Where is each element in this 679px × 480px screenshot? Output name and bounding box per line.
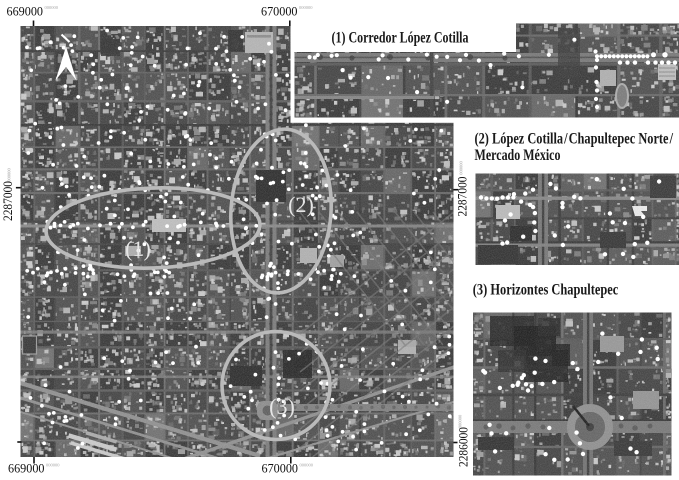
- svg-text:000000: 000000: [45, 5, 59, 10]
- svg-text:(3): (3): [269, 394, 295, 419]
- svg-text:(2) López Cotilla / Chapultepe: (2) López Cotilla / Chapultepec Norte /: [475, 130, 674, 147]
- svg-text:2287000: 2287000: [456, 177, 470, 217]
- svg-text:Mercado México: Mercado México: [475, 147, 561, 164]
- svg-text:(2): (2): [288, 192, 314, 217]
- svg-text:670000: 670000: [262, 462, 299, 476]
- svg-text:669000: 669000: [7, 5, 44, 19]
- svg-text:000000: 000000: [300, 463, 314, 468]
- svg-text:(1): (1): [125, 236, 151, 261]
- svg-text:000000: 000000: [46, 463, 60, 468]
- svg-text:000000: 000000: [458, 414, 463, 428]
- svg-text:2287000: 2287000: [1, 181, 15, 221]
- svg-text:669000: 669000: [8, 462, 45, 476]
- svg-text:670000: 670000: [261, 5, 298, 19]
- svg-text:000000: 000000: [299, 5, 313, 10]
- svg-text:000000: 000000: [7, 168, 12, 182]
- svg-text:2286000: 2286000: [457, 427, 471, 467]
- svg-text:(3) Horizontes Chapultepec: (3) Horizontes Chapultepec: [473, 281, 619, 298]
- svg-text:(1) Corredor López Cotilla: (1) Corredor López Cotilla: [332, 29, 469, 46]
- svg-text:000000: 000000: [459, 161, 464, 175]
